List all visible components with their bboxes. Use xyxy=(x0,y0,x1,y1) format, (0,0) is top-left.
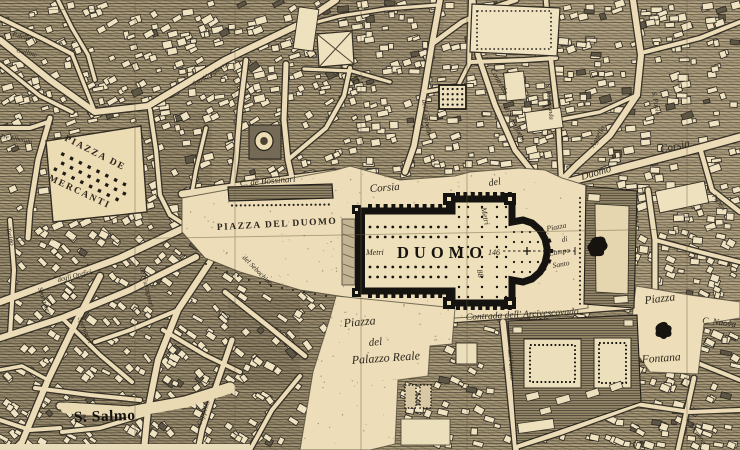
svg-text:Corsia: Corsia xyxy=(369,181,400,195)
svg-text:146: 146 xyxy=(488,248,500,257)
svg-text:88: 88 xyxy=(475,269,485,278)
svg-text:DUOMO: DUOMO xyxy=(397,243,487,262)
svg-text:Piazza: Piazza xyxy=(342,313,376,330)
svg-text:del: del xyxy=(488,176,502,189)
svg-text:Metri: Metri xyxy=(365,248,384,257)
svg-text:del: del xyxy=(368,336,382,349)
svg-text:S. Salmo: S. Salmo xyxy=(74,407,136,426)
